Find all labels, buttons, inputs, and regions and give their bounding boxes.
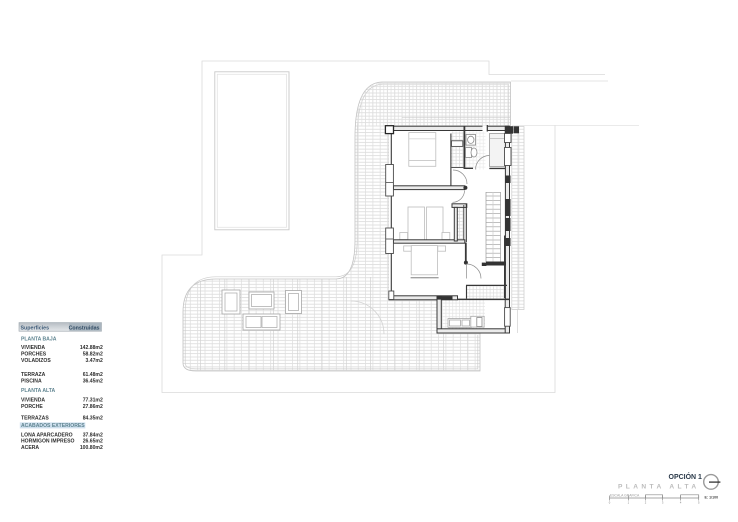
svg-text:VOLADIZOS: VOLADIZOS: [21, 358, 51, 364]
svg-text:27.86m2: 27.86m2: [83, 404, 103, 410]
svg-text:100.80m2: 100.80m2: [80, 445, 103, 451]
svg-text:PLANTA ALTA: PLANTA ALTA: [21, 388, 55, 394]
svg-text:TERRAZAS: TERRAZAS: [21, 416, 49, 422]
svg-text:142.88m2: 142.88m2: [80, 345, 103, 351]
svg-text:ACABADOS EXTERIORES: ACABADOS EXTERIORES: [21, 423, 85, 429]
svg-text:PLANTA BAJA: PLANTA BAJA: [21, 337, 57, 343]
svg-text:PORCHES: PORCHES: [21, 352, 47, 358]
svg-text:26.65m2: 26.65m2: [83, 439, 103, 445]
svg-text:84.35m2: 84.35m2: [83, 416, 103, 422]
svg-text:36.45m2: 36.45m2: [83, 379, 103, 385]
svg-text:ACERA: ACERA: [21, 445, 39, 451]
svg-text:E: 1/100: E: 1/100: [705, 495, 719, 499]
svg-text:PLANTA ALTA: PLANTA ALTA: [618, 484, 700, 491]
svg-text:OPCIÓN 1: OPCIÓN 1: [669, 472, 703, 481]
svg-text:HORMIGON IMPRESO: HORMIGON IMPRESO: [21, 439, 75, 445]
svg-text:PORCHE: PORCHE: [21, 404, 43, 410]
svg-text:ESCALA GRAFICA: ESCALA GRAFICA: [610, 494, 640, 498]
svg-text:77.31m2: 77.31m2: [83, 398, 103, 404]
svg-text:3.47m2: 3.47m2: [86, 358, 103, 364]
svg-text:58.82m2: 58.82m2: [83, 352, 103, 358]
svg-text:Construidas: Construidas: [69, 326, 100, 332]
svg-text:TERRAZA: TERRAZA: [21, 372, 46, 378]
svg-text:61.48m2: 61.48m2: [83, 372, 103, 378]
svg-text:VIVIENDA: VIVIENDA: [21, 345, 45, 351]
svg-text:Superficies: Superficies: [21, 326, 50, 332]
svg-text:VIVIENDA: VIVIENDA: [21, 398, 45, 404]
svg-text:PISCINA: PISCINA: [21, 379, 42, 385]
